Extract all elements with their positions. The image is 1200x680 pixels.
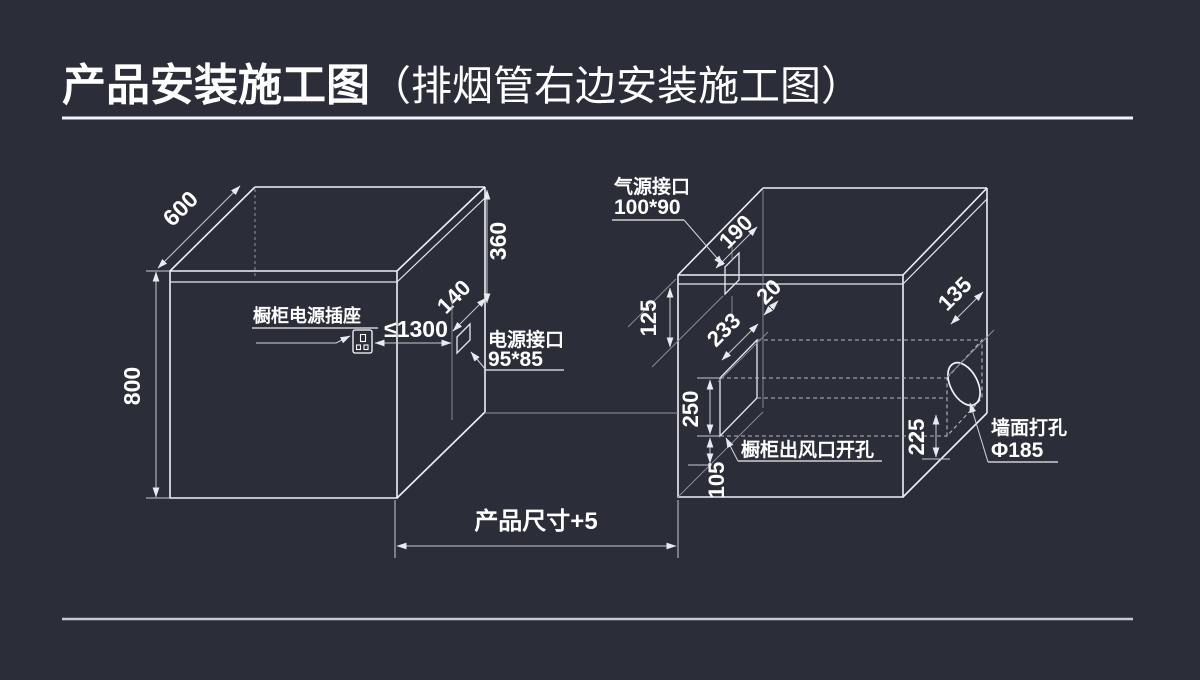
power-port-opening xyxy=(457,324,470,353)
duct-end-face xyxy=(947,340,982,436)
product-size-dimension: 产品尺寸+5 xyxy=(395,500,678,558)
dim-360-text: 360 xyxy=(485,222,511,260)
socket-leader xyxy=(256,336,350,343)
left-cabinet-dimensions: 800 600 360 140 ≤1300 橱柜电源插座 电源接口 95*85 xyxy=(119,186,564,498)
page-title-main: 产品安装施工图 xyxy=(62,61,370,110)
dim-135-text: 135 xyxy=(933,272,977,316)
right-cabinet-dimensions: 气源接口 100*90 190 125 233 20 250 105 225 1… xyxy=(612,175,1067,498)
socket-pin-left xyxy=(357,345,361,350)
dim-105-text: 105 xyxy=(704,462,729,499)
dim-140-text: 140 xyxy=(432,275,476,319)
dim-225-text: 225 xyxy=(904,419,929,456)
wall-hole-leader xyxy=(970,403,988,462)
power-socket-icon xyxy=(353,330,372,353)
drawing-canvas: 产品安装施工图（排烟管右边安装施工图） 800 600 360 140 xyxy=(0,0,1200,680)
gas-port-leader xyxy=(684,220,723,265)
dim-233-text: 233 xyxy=(702,308,746,352)
dim-1300-text: ≤1300 xyxy=(384,316,448,342)
left-cabinet-top-right-lip xyxy=(397,198,485,282)
outlet-label: 橱柜出风口开孔 xyxy=(740,438,874,461)
gas-port-size: 100*90 xyxy=(614,196,681,219)
outlet-leader xyxy=(726,438,738,461)
socket-slot xyxy=(361,335,366,342)
wall-hole-label: 墙面打孔 xyxy=(991,416,1067,439)
dim-250-text: 250 xyxy=(678,391,703,428)
product-dim-text: 产品尺寸+5 xyxy=(474,507,597,535)
dim-600-text: 600 xyxy=(158,186,204,232)
right-cabinet-top-right-lip xyxy=(903,199,987,284)
dim-125-text: 125 xyxy=(636,300,661,337)
left-cabinet-right-bottom-edge xyxy=(397,412,485,498)
installation-drawing-page: 产品安装施工图（排烟管右边安装施工图） 800 600 360 140 xyxy=(0,0,1200,680)
dim-20-text: 20 xyxy=(751,274,786,309)
socket-label: 橱柜电源插座 xyxy=(253,305,361,326)
wall-hole-size: Φ185 xyxy=(991,439,1044,462)
right-cabinet-top-right-edge xyxy=(903,188,987,275)
page-title: 产品安装施工图（排烟管右边安装施工图） xyxy=(62,61,862,110)
duct-outlet-opening xyxy=(720,340,757,436)
socket-pin-right xyxy=(364,345,368,350)
dim-600-line xyxy=(158,186,240,268)
gas-port-label: 气源接口 xyxy=(613,175,690,198)
dim-190-text: 190 xyxy=(714,210,758,254)
left-cabinet-top-right-edge xyxy=(397,187,485,271)
power-port-leader xyxy=(471,352,486,370)
wall-hole-ellipse xyxy=(941,357,986,410)
power-port-size: 95*85 xyxy=(488,348,543,371)
page-title-paren: （排烟管右边安装施工图） xyxy=(370,63,862,109)
dim-800-text: 800 xyxy=(119,367,145,405)
gas-port xyxy=(725,245,739,318)
exhaust-duct xyxy=(720,340,987,436)
